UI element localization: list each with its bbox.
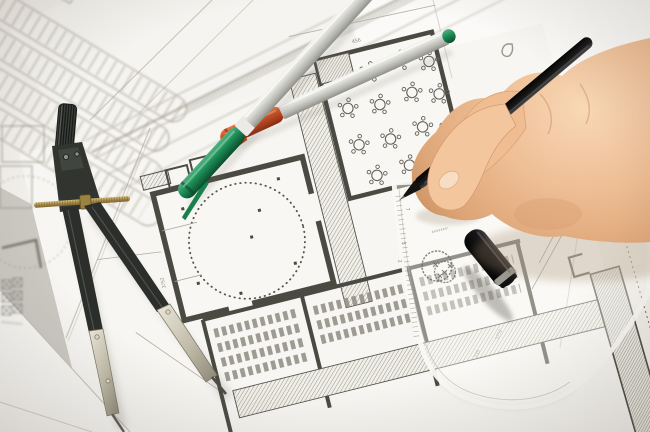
photo-architect-workspace: Close-up of an architect's workspace: a … xyxy=(0,0,650,432)
photo-vignette xyxy=(0,0,650,432)
photo-canvas: 456 3752 3752 135 7 3 2 xyxy=(0,0,650,432)
